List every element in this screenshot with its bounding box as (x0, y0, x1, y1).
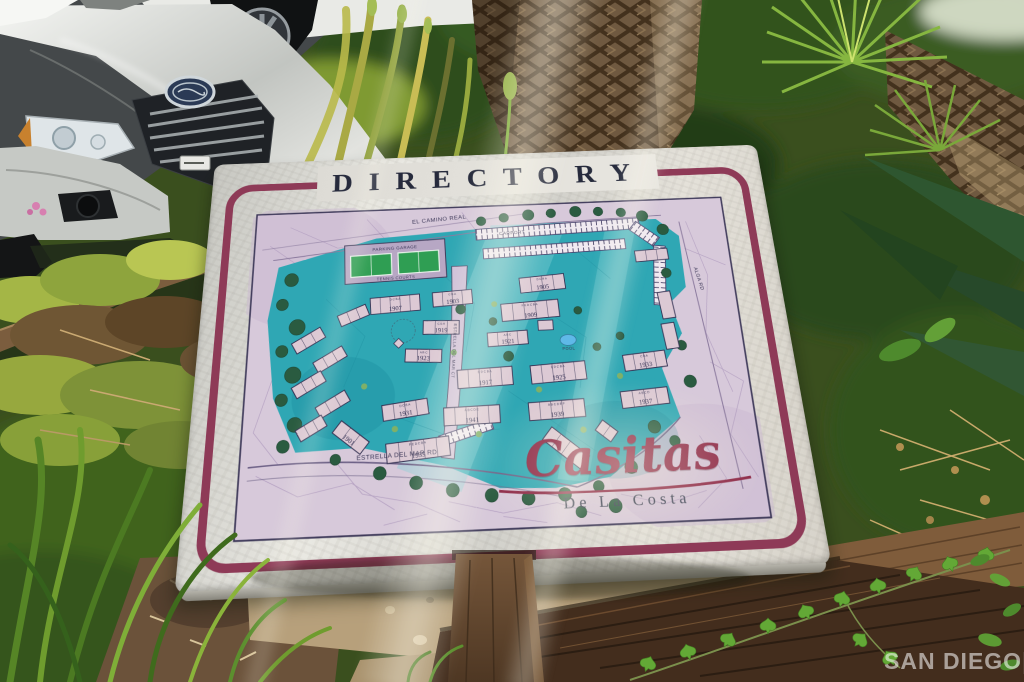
sign-post (448, 550, 544, 682)
photo-scene: DIRECTORY (0, 0, 1024, 682)
watermark: SAN DIEGO|MLS (884, 648, 1024, 675)
foreground-grass (10, 430, 462, 682)
foreground-layer (0, 0, 1024, 682)
